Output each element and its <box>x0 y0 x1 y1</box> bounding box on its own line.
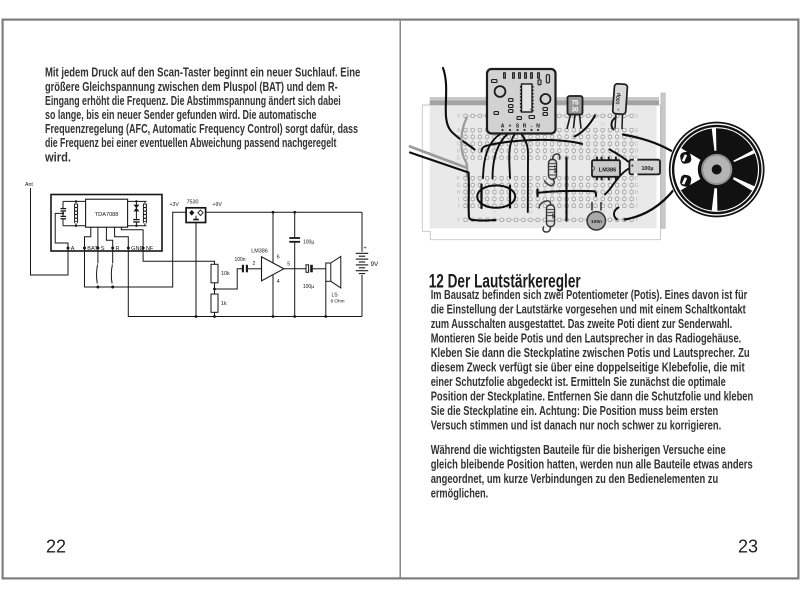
svg-text:+9V: +9V <box>213 202 223 208</box>
svg-text:R: R <box>116 246 120 252</box>
svg-text:Frequenzregelung (AFC, Automat: Frequenzregelung (AFC, Automatic Frequen… <box>45 121 358 136</box>
svg-text:22: 22 <box>46 537 66 557</box>
svg-text:6: 6 <box>277 255 280 261</box>
svg-text:N: N <box>536 124 540 130</box>
svg-text:4: 4 <box>277 279 280 285</box>
svg-text:F: F <box>635 176 638 182</box>
svg-text:J: J <box>635 204 638 210</box>
svg-text:C: C <box>457 142 461 148</box>
svg-text:100n: 100n <box>591 219 602 225</box>
svg-text:LM386: LM386 <box>251 249 267 255</box>
svg-text:+: + <box>364 246 367 252</box>
svg-text:D: D <box>635 149 639 155</box>
svg-text:einer Schutzfolie abgedeckt is: einer Schutzfolie abgedeckt ist. Ermitte… <box>431 374 726 389</box>
svg-text:A: A <box>457 128 461 134</box>
svg-text:100µ: 100µ <box>303 239 314 245</box>
svg-text:23: 23 <box>738 537 758 557</box>
svg-text:Mit jedem Druck auf den Scan-T: Mit jedem Druck auf den Scan-Taster begi… <box>45 65 360 80</box>
svg-text:TDA7088: TDA7088 <box>95 212 119 218</box>
svg-text:Ant: Ant <box>25 182 33 188</box>
svg-text:X: X <box>635 114 639 120</box>
svg-text:75: 75 <box>572 101 579 107</box>
svg-text:A: A <box>71 246 75 252</box>
svg-text:Kleben Sie dann die Steckplati: Kleben Sie dann die Steckplatine zwische… <box>431 345 750 360</box>
svg-text:+: + <box>509 124 512 130</box>
svg-text:wird.: wird. <box>44 149 71 164</box>
svg-text:G: G <box>634 183 638 189</box>
svg-text:E: E <box>457 156 461 162</box>
svg-text:Y: Y <box>635 218 639 224</box>
svg-text:die Einstellung der Lautstärke: die Einstellung der Lautstärke vorgesehe… <box>431 301 746 316</box>
svg-text:R: R <box>523 124 527 130</box>
svg-text:so lange, bis ein neuer Sender: so lange, bis ein neuer Sender gefunden … <box>45 107 317 122</box>
svg-text:+3V: +3V <box>170 202 180 208</box>
svg-text:5: 5 <box>287 261 290 267</box>
svg-text:100µ: 100µ <box>615 93 622 105</box>
svg-text:zum Ausschalten ausgestattet.: zum Ausschalten ausgestattet. Das zweite… <box>431 316 733 331</box>
svg-text:8 Ohm: 8 Ohm <box>331 299 345 304</box>
svg-text:20: 20 <box>600 122 606 127</box>
svg-text:30: 30 <box>572 108 579 114</box>
svg-text:D: D <box>457 149 461 155</box>
svg-text:10: 10 <box>528 210 534 215</box>
svg-text:1k: 1k <box>550 213 556 219</box>
svg-text:X: X <box>457 114 461 120</box>
svg-text:100n: 100n <box>234 257 245 263</box>
svg-text:2: 2 <box>253 261 256 267</box>
svg-text:Montieren Sie beide Potis und: Montieren Sie beide Potis und den Lautsp… <box>431 330 742 345</box>
svg-text:+: + <box>631 164 634 170</box>
svg-text:BAT: BAT <box>87 246 98 252</box>
svg-text:diesem Zweck verfügt sie über: diesem Zweck verfügt sie über eine doppe… <box>431 359 745 374</box>
svg-text:J: J <box>457 204 460 210</box>
svg-text:A: A <box>635 128 639 134</box>
svg-text:S: S <box>101 246 105 252</box>
svg-text:1k: 1k <box>221 301 227 307</box>
svg-text:Sie die Steckplatine ein. Acht: Sie die Steckplatine ein. Achtung: Die P… <box>431 403 719 418</box>
svg-text:Y: Y <box>457 218 461 224</box>
svg-text:H: H <box>457 190 461 196</box>
svg-text:GND: GND <box>131 246 143 252</box>
svg-text:Während die wichtigsten Bautei: Während die wichtigsten Bauteile für die… <box>431 442 726 457</box>
svg-text:10k: 10k <box>552 165 558 173</box>
svg-text:F: F <box>457 176 460 182</box>
svg-text:C: C <box>635 142 639 148</box>
svg-text:Position der Steckplatine. Ent: Position der Steckplatine. Entfernen Sie… <box>431 388 754 403</box>
svg-text:100µ: 100µ <box>641 166 653 172</box>
svg-text:5: 5 <box>493 210 496 215</box>
svg-text:die Frequenz bei einer eventue: die Frequenz bei einer eventuellen Abwei… <box>45 135 337 150</box>
svg-text:H: H <box>635 190 639 196</box>
svg-text:gleich bleibende Position hatt: gleich bleibende Position hatten, werden… <box>431 456 753 471</box>
svg-text:Im Bausatz befinden sich zwei: Im Bausatz befinden sich zwei Potentiome… <box>431 287 748 302</box>
svg-text:angeordnet, um kurze Verbindun: angeordnet, um kurze Verbindungen zu den… <box>431 471 719 486</box>
svg-text:Versuch stimmen und ist danach: Versuch stimmen und ist danach nur noch … <box>431 417 722 432</box>
svg-text:LM386: LM386 <box>599 167 616 173</box>
svg-text:100µ: 100µ <box>303 284 314 290</box>
svg-text:9V: 9V <box>371 261 380 268</box>
svg-text:7530: 7530 <box>187 200 199 206</box>
svg-text:G: G <box>456 183 460 189</box>
svg-text:Eingang erhöht die Frequenz. D: Eingang erhöht die Frequenz. Die Abstimm… <box>45 93 341 108</box>
svg-text:10k: 10k <box>221 271 230 277</box>
svg-text:ermöglichen.: ermöglichen. <box>431 486 489 501</box>
svg-text:NF: NF <box>146 246 154 252</box>
svg-text:größere Gleichspannung zwische: größere Gleichspannung zwischen dem Plus… <box>45 79 338 94</box>
svg-text:A: A <box>501 124 505 130</box>
